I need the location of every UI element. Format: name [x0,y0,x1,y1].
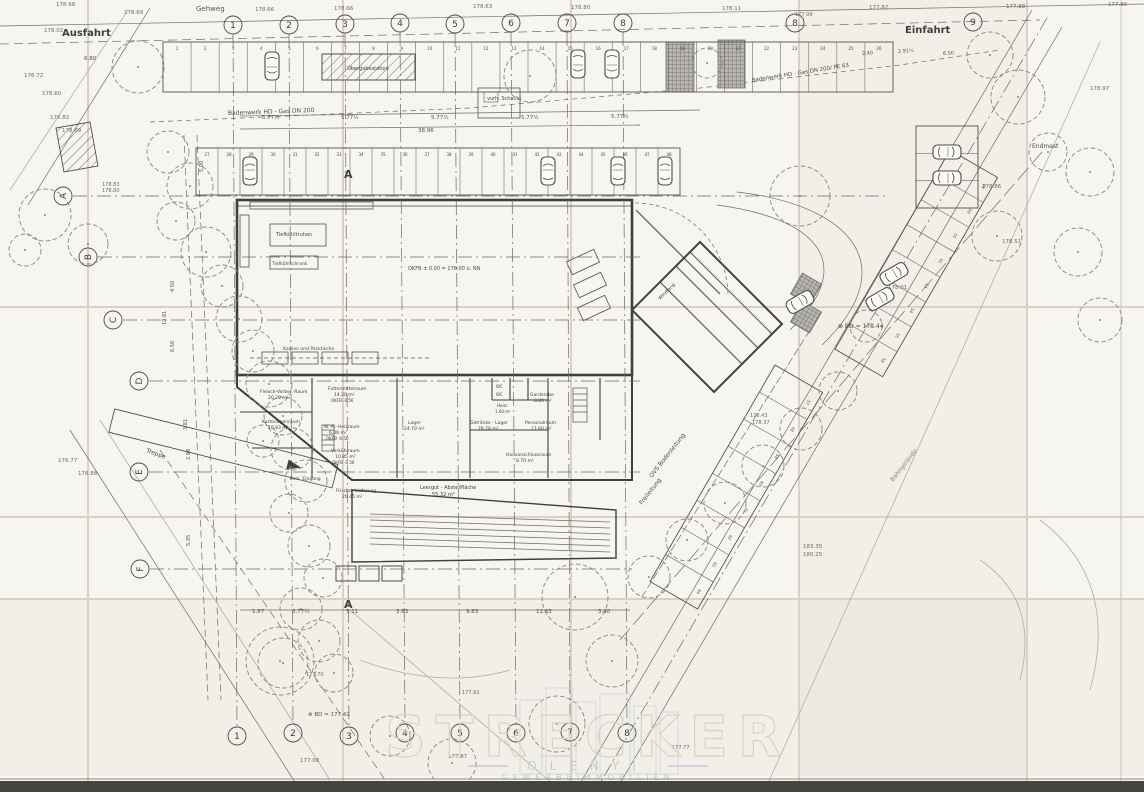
tree-center [574,596,576,598]
annotation-text: 176.72 [24,73,43,79]
stall-number: 18 [652,46,658,51]
tree-center [322,577,324,579]
stall-number: 34 [358,152,364,157]
tree-center [837,390,839,392]
annotation-text: 20.20 m² [268,395,289,401]
stall-number: 24 [820,46,826,51]
annotation-text: 180.25 [803,552,823,558]
axis-label: A [59,192,69,199]
annotation-text: Frischd.-Lieferung [336,488,376,494]
annotation-text: W.-M.-Heizraum [324,424,360,430]
annotation-text: Einfahrt [905,25,951,36]
tree-center [724,502,726,504]
annotation-text: 176.82 [50,115,69,121]
stall-number: 16 [596,46,602,51]
stall-number: 30 [270,152,276,157]
stall-number: 31 [292,152,298,157]
axis-label: F [136,566,146,571]
stall-number: 39 [468,152,474,157]
stall-number: 32 [314,152,320,157]
tree-center [268,383,270,385]
annotation-text: 177.86 [1108,2,1128,8]
annotation-text: 20.45 m² [342,494,363,500]
car-icon [265,52,279,80]
annotation-text: Getränke - Lager [470,420,508,426]
annotation-text: 178.02 [44,28,63,34]
annotation-text: 177.88 [1006,4,1026,10]
annotation-text: 5.77½ [262,114,280,121]
axis-label: E [135,469,145,475]
annotation-text: 9.63 [466,609,479,615]
tree-center [1099,319,1101,321]
annotation-text: 6.80 [84,56,97,62]
axis-label: D [135,377,145,384]
stall-number: 37 [424,152,430,157]
watermark-subtitle: OLENYI [527,759,649,773]
annotation-text: 178.80 [571,5,591,11]
annotation-text: 178.68 [56,2,76,8]
car-icon [933,171,961,185]
annotation-text: Tiefkühlschrank [271,261,308,267]
annotation-text: 177.99 [795,12,813,18]
annotation-text: Übergabestation [347,65,389,72]
stall-number: 45 [600,152,606,157]
tree-center [308,545,310,547]
stall-number: 46 [622,152,628,157]
annotation-text: 178.66 [255,7,275,13]
tree-center [44,214,46,216]
annotation-text: 178.60 [42,91,62,97]
annotation-text: Garderobe [530,392,554,398]
car-icon [243,157,257,185]
stall-number: 29 [248,152,254,157]
annotation-text: ⊗ BD = 177.42 [308,712,350,718]
annotation-text: Lager [408,420,421,426]
stall-number: 42 [534,152,540,157]
annotation-text: ⊗ BD = 178.44 [838,323,884,330]
tree-center [1077,251,1079,253]
scanned-site-plan: 123456788912345678ABCDEF 123456789101112… [0,0,1144,792]
stall-number: 36 [402,152,408,157]
stall-number: 4 [260,46,263,51]
stall-number: 17 [624,46,630,51]
stall-number: 9 [400,46,403,51]
annotation-text: Leergut - Abstellfläche [420,485,476,491]
axis-label: 5 [452,20,458,30]
annotation-text: 3.40 [598,609,611,615]
annotation-text: Hausanschlussraum [506,452,551,458]
scanner-edge-band [0,781,1144,792]
annotation-text: Heizr. [497,403,508,408]
annotation-text: 176.88 [78,471,98,477]
stall-number: 27 [204,152,210,157]
car-icon [611,157,625,185]
axis-label: 6 [508,19,514,29]
annotation-text: WC [496,384,503,389]
tree-center [24,249,26,251]
tree-center [189,185,191,187]
annotation-text: 55.32 m² [432,492,455,498]
tree-center [996,235,998,237]
annotation-text: 178.01 [888,285,907,291]
annotation-text: 177.92 [462,690,480,696]
stall-number: 47 [644,152,650,157]
tree-center [238,318,240,320]
tree-center [288,512,290,514]
stall-number: 40 [490,152,496,157]
annotation-text: 17.60 m² [531,426,552,432]
annotation-text: 183.35 [803,544,823,550]
annotation-text: 2.40 [862,50,874,57]
stall-number: 14 [539,46,545,51]
tree-center [1047,151,1049,153]
car-icon [571,50,585,78]
annotation-text: 178.11 [722,6,741,12]
axis-label: 1 [230,21,236,31]
stall-number: 7 [344,46,347,51]
tree-center [221,285,223,287]
tree-center [262,440,264,442]
annotation-text: 24.70 m² [404,426,425,432]
stall-number: 44 [578,152,584,157]
stall-number: 25 [848,46,854,51]
axis-label: 7 [564,19,570,29]
axis-label: 2 [290,729,296,739]
annotation-text: OKFB -0.56 [332,460,355,465]
stall-number: 8 [372,46,375,51]
tree-center [282,415,284,417]
annotation-text: 5.35 [186,535,192,546]
axis-label: C [109,317,119,323]
tree-center [1017,96,1019,98]
car-icon [541,157,555,185]
annotation-text: 11.63 [536,609,552,615]
annotation-text: 178.89 [62,128,82,134]
annotation-text: Fleisch-Vorber.-Raum [260,389,307,395]
annotation-text: OKFB ± 0.00 = 178.00 ü. NN [408,266,481,272]
annotation-text: Pers. Eingang [290,476,321,482]
annotation-text: 178.86 [982,184,1002,190]
axis-label: 9 [970,18,976,28]
annotation-text: 1.87 [252,609,265,615]
stall-number: 15 [568,46,574,51]
tree-center [87,243,89,245]
stall-number: 48 [666,152,672,157]
annotation-text: Endmast [1032,143,1059,150]
stall-number: 21 [736,46,742,51]
annotation-text: Gehweg [196,5,225,13]
annotation-text: 178.37 [752,420,770,426]
stall-number: 12 [483,46,489,51]
annotation-text: Futtermittelraum [328,386,366,392]
axis-label: 1 [234,732,240,742]
annotation-text: Vorkühlraum [331,448,360,454]
annotation-text: 2.98 [186,449,192,460]
car-icon [605,50,619,78]
axis-label: 3 [342,20,348,30]
stall-number: 10 [427,46,433,51]
annotation-text: 19.81 [162,311,168,325]
stall-number: 19 [680,46,686,51]
annotation-text: 178.69 [124,10,144,16]
tree-center [318,640,320,642]
axis-label: 3 [346,732,352,742]
axis-label: 2 [286,21,292,31]
paper-background [0,0,1144,792]
annotation-text: 178.43 [750,413,768,419]
tree-center [252,350,254,352]
annotation-text: Kassen und Packtische [283,346,334,352]
annotation-text: Tiefkühltruhen [275,232,312,238]
annotation-text: 177.08 [300,758,320,764]
tree-center [1089,171,1091,173]
stall-number: 13 [511,46,517,51]
annotation-text: 38.96 [418,128,434,134]
annotation-text: 3.77½ [292,608,310,615]
car-icon [658,157,672,185]
axis-label: 8 [620,19,626,29]
annotation-text: 6.56 [170,341,176,352]
tree-center [291,448,293,450]
annotation-text: OKFB -0.56 [326,436,349,441]
annotation-text: 5.77½ [341,114,359,121]
annotation-text: WC [496,392,503,397]
stall-number: 22 [764,46,770,51]
tree-center [686,539,688,541]
annotation-text: 1.60 m² [495,409,511,414]
annotation-text: 178.80 [102,188,120,194]
tree-center [167,151,169,153]
annotation-text: 178.66 [334,6,354,12]
annotation-text: 5.77½ [521,114,539,121]
annotation-text: 5.00 [199,161,205,172]
annotation-text: 5.77½ [431,114,449,121]
annotation-text: 5.77½ [611,113,629,120]
stall-number: 26 [876,46,882,51]
annotation-text: 4.50 [170,281,176,292]
annotation-text: Ausfahrt [62,28,111,39]
annotation-text: Kartonagenraum [262,419,300,425]
annotation-text: A [344,168,353,181]
tree-center [706,62,708,64]
annotation-text: 178.51 [1002,239,1021,245]
tree-center [800,428,802,430]
tree-center [611,660,613,662]
tree-center [282,662,284,664]
tree-center [529,75,531,77]
annotation-text: 177.87 [869,5,889,11]
annotation-text: OKFB -0.56 [331,398,354,403]
car-icon [933,145,961,159]
annotation-text: vorh. Schacht [487,96,521,102]
stall-number: 41 [512,152,518,157]
annotation-text: 177.70 [306,672,324,678]
tree-center [333,672,335,674]
tree-center [137,66,139,68]
annotation-text: 3.81 [183,419,189,430]
stall-number: 28 [226,152,232,157]
tree-center [799,195,801,197]
annotation-text: 8.70 m² [516,458,534,464]
stall-number: 35 [380,152,386,157]
stall-number: 33 [336,152,342,157]
stall-number: 5 [288,46,291,51]
stall-number: 23 [792,46,798,51]
annotation-text: 10.83 m² [268,425,289,431]
annotation-text: 5.11 [346,609,358,615]
site-plan-drawing: 123456788912345678ABCDEF 123456789101112… [0,0,1144,792]
annotation-text: 78.78 m² [478,426,499,432]
annotation-text: 176.77 [58,458,78,464]
annotation-text: 2.91½ [898,47,915,55]
watermark-tagline: GEWERBEIMMOBILIEN [501,773,674,782]
annotation-text: 6.50 [943,50,955,57]
axis-label: B [84,254,94,260]
tree-center [648,576,650,578]
tree-center [279,660,281,662]
annotation-text: Personalraum [525,420,556,426]
stall-number: 43 [556,152,562,157]
annotation-text: 178.97 [1090,86,1110,92]
axis-label: 4 [397,19,403,29]
stall-number: 11 [455,46,461,51]
axis-label: 8 [792,19,798,29]
tree-center [175,220,177,222]
annotation-text: 178.63 [473,4,493,10]
annotation-text: 8.80 m² [534,398,552,404]
annotation-text: 3.63 [396,609,409,615]
tree-center [762,465,764,467]
stall-number: 6 [316,46,319,51]
tree-center [205,251,207,253]
stall-number: 38 [446,152,452,157]
tree-center [989,54,991,56]
